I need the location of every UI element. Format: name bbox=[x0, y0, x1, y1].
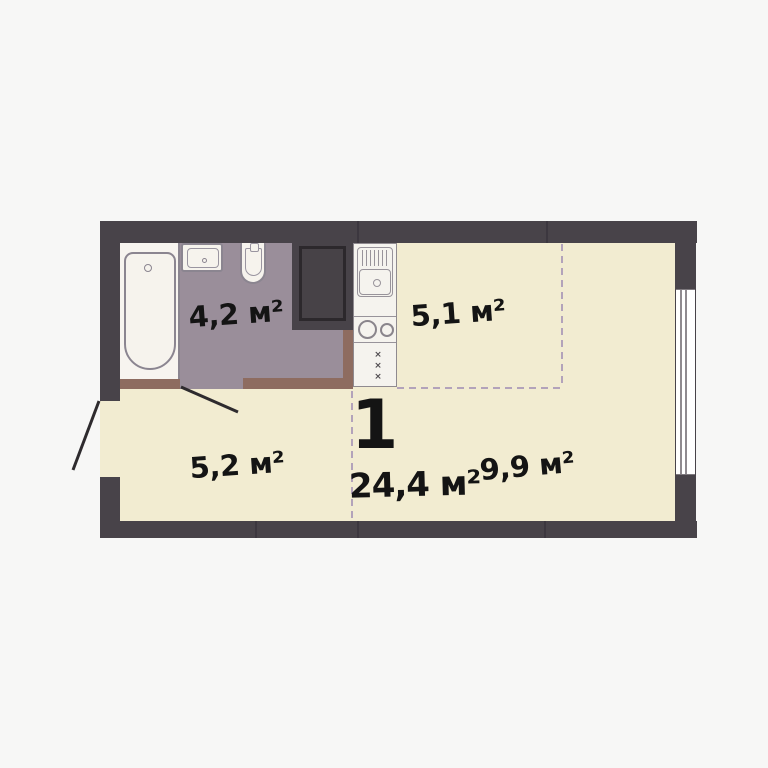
wall-joint bbox=[255, 521, 257, 538]
entrance-door-swing-line bbox=[73, 401, 99, 470]
window-glass-line bbox=[680, 290, 682, 474]
wall-west-lower bbox=[100, 477, 120, 538]
cabinet-handle-mark: × bbox=[371, 373, 385, 382]
bathroom-sink-faucet-icon bbox=[202, 258, 207, 263]
toilet-bowl bbox=[245, 248, 262, 276]
toilet bbox=[240, 243, 266, 284]
total-area-label: 24,4 м² bbox=[348, 463, 480, 506]
kitchen-sink-drainer-icon bbox=[362, 250, 388, 266]
room-count-label: 1 bbox=[351, 392, 397, 460]
kitchen-sink-drain-icon bbox=[373, 279, 381, 287]
wall-south bbox=[100, 521, 697, 538]
window bbox=[676, 289, 695, 475]
bathroom-east-partition bbox=[343, 329, 353, 389]
cabinet-handle-mark: × bbox=[371, 362, 385, 371]
bathroom-south-partition bbox=[243, 378, 343, 389]
wall-north bbox=[100, 221, 697, 243]
toilet-tank-icon bbox=[250, 243, 259, 252]
kitchen-unit-divider bbox=[354, 342, 396, 343]
wall-joint bbox=[357, 221, 359, 243]
window-glass-line bbox=[685, 290, 687, 474]
bathtub-drain-icon bbox=[144, 264, 152, 272]
bathroom-sink bbox=[181, 243, 223, 272]
partition-under-bathtub bbox=[120, 379, 180, 389]
wall-joint bbox=[357, 521, 359, 538]
wall-joint bbox=[546, 221, 548, 243]
wall-joint bbox=[544, 521, 546, 538]
cabinet-handle-mark: × bbox=[371, 351, 385, 360]
cooktop-burner-icon bbox=[358, 320, 377, 339]
entrance-doorway-floor bbox=[100, 401, 120, 477]
wall-west-upper bbox=[100, 221, 120, 401]
ventilation-shaft-duct bbox=[299, 246, 346, 321]
